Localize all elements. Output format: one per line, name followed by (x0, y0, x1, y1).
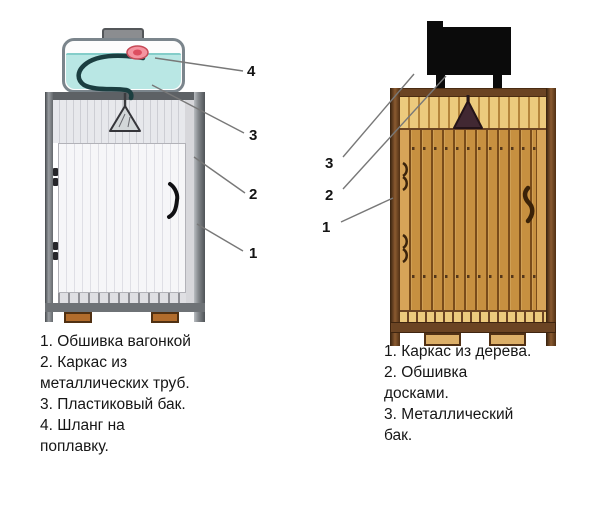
left-legend: 1. Обшивка вагонкой 2. Каркас из металли… (40, 331, 275, 457)
door-hinge-icon (53, 242, 58, 250)
metal-tank-leg (493, 75, 502, 89)
legend-line: поплавку. (40, 436, 275, 457)
legend-line: 1. Обшивка вагонкой (40, 331, 275, 352)
metal-water-tank (427, 27, 511, 75)
shower-cabins-diagram: { "palette": { "water": "#b9e7e4", "floa… (0, 0, 600, 510)
door-left-stile (400, 130, 410, 310)
wood-frame-right-post (546, 88, 556, 346)
legend-line: 3. Металлический (384, 404, 579, 425)
tank-water (66, 53, 181, 89)
wood-frame-left-post (390, 88, 400, 346)
right-cabin-door (400, 130, 546, 310)
cladding-side-strip (185, 100, 194, 303)
right-legend: 1. Каркас из дерева. 2. Обшивка досками.… (384, 341, 579, 446)
callout-label: 4 (247, 63, 255, 80)
legend-line: досками. (384, 383, 579, 404)
callout-label: 2 (249, 186, 257, 203)
callout-label: 1 (322, 219, 330, 236)
callout-label: 3 (325, 155, 333, 172)
callout-label: 1 (249, 245, 257, 262)
door-hinge-icon (53, 252, 58, 260)
leader-line-1 (341, 198, 393, 222)
plastic-water-tank (62, 38, 185, 93)
metal-frame-right-post (194, 92, 205, 322)
legend-line: 2. Каркас из (40, 352, 275, 373)
legend-line: металлических труб. (40, 373, 275, 394)
wood-transom-slats (400, 97, 546, 130)
door-right-stile (536, 130, 546, 310)
legend-line: 2. Обшивка (384, 362, 579, 383)
legend-line: 4. Шланг на (40, 415, 275, 436)
wood-frame-bottom-bar (390, 322, 556, 333)
callout-label: 3 (249, 127, 257, 144)
legend-line: бак. (384, 425, 579, 446)
metal-frame-bottom-bar (45, 303, 205, 312)
legend-line: 3. Пластиковый бак. (40, 394, 275, 415)
clapboard-upper-panel (53, 100, 185, 143)
left-door-bottom-trim (58, 293, 186, 303)
metal-tank-leg (436, 75, 445, 89)
metal-frame-left-post (45, 92, 53, 322)
door-nail-row (412, 147, 536, 150)
left-cabin-foot (151, 312, 179, 323)
metal-frame-top-bar (45, 92, 205, 100)
door-nail-row (412, 275, 536, 278)
left-cabin-foot (64, 312, 92, 323)
legend-line: 1. Каркас из дерева. (384, 341, 579, 362)
wood-frame-top-bar (390, 88, 556, 97)
door-hinge-icon (53, 178, 58, 186)
door-hinge-icon (53, 168, 58, 176)
right-cabin-bottom-trim (400, 310, 546, 322)
left-cabin-door (58, 143, 186, 293)
callout-label: 2 (325, 187, 333, 204)
